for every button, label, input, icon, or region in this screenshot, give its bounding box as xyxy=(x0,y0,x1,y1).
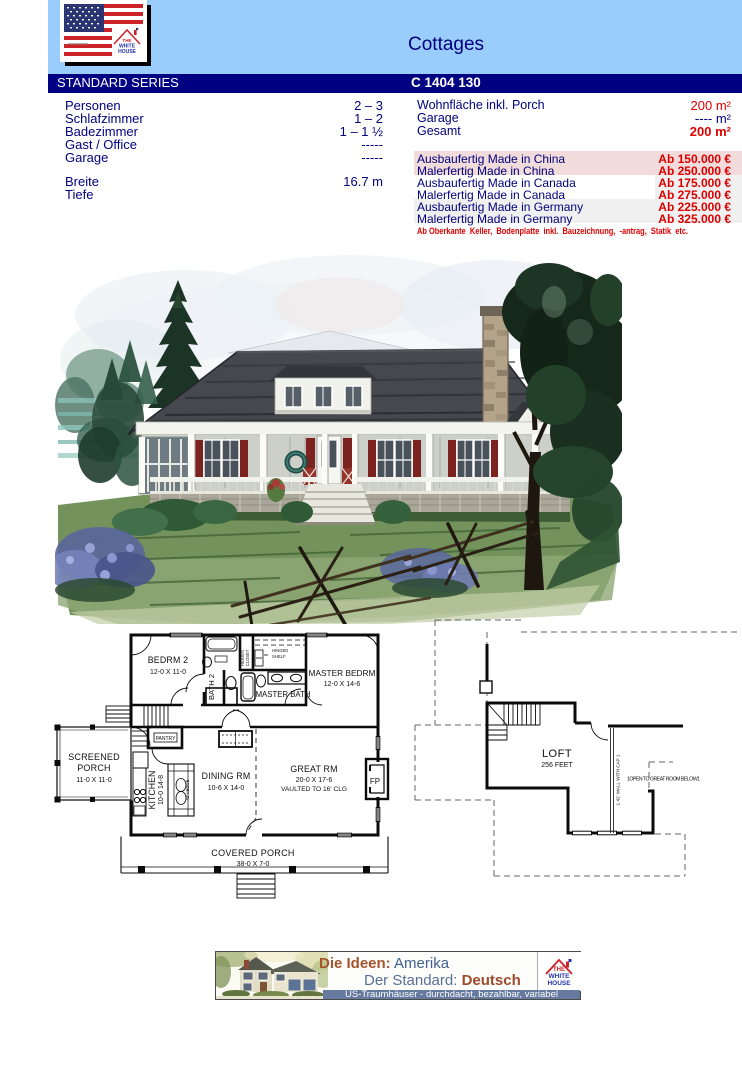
svg-text:PORCH: PORCH xyxy=(77,763,111,773)
svg-text:VAULTED TO 16' CLG: VAULTED TO 16' CLG xyxy=(281,786,347,793)
svg-text:LOFT: LOFT xyxy=(542,748,572,760)
svg-text:DINING RM: DINING RM xyxy=(202,771,251,781)
svg-text:12-0 X 11-0: 12-0 X 11-0 xyxy=(150,669,186,676)
svg-text:38-0 X 7-0: 38-0 X 7-0 xyxy=(237,861,270,868)
svg-text:BATH 2: BATH 2 xyxy=(207,674,216,700)
svg-text:PANTRY: PANTRY xyxy=(156,736,176,742)
svg-text:1 42' WALL WITH CAP 1: 1 42' WALL WITH CAP 1 xyxy=(616,754,621,805)
svg-text:COVERED PORCH: COVERED PORCH xyxy=(211,848,294,858)
svg-text:HOUSE: HOUSE xyxy=(118,49,136,55)
svg-text:THE: THE xyxy=(122,38,131,43)
svg-text:10-6 X 14-0: 10-6 X 14-0 xyxy=(208,785,245,792)
svg-text:FP: FP xyxy=(370,777,380,786)
svg-text:CLOSET: CLOSET xyxy=(245,649,250,666)
svg-text:10-0 14-8: 10-0 14-8 xyxy=(158,775,165,805)
svg-text:256 FEET: 256 FEET xyxy=(541,762,573,769)
svg-text:MASTER BEDRM: MASTER BEDRM xyxy=(309,668,376,678)
svg-text:WHITE: WHITE xyxy=(548,973,570,980)
svg-text:GREAT RM: GREAT RM xyxy=(290,764,337,774)
svg-text:42' LEDGE: 42' LEDGE xyxy=(185,779,190,800)
svg-text:MASTER BATH: MASTER BATH xyxy=(256,690,311,699)
svg-text:20-0 X 17-6: 20-0 X 17-6 xyxy=(296,777,333,784)
svg-text:HINGED: HINGED xyxy=(272,648,288,653)
svg-text:SCREENED: SCREENED xyxy=(68,752,120,762)
svg-text:BEDRM 2: BEDRM 2 xyxy=(148,655,189,665)
svg-text:11-0 X 11-0: 11-0 X 11-0 xyxy=(76,777,112,784)
svg-text:SHELF: SHELF xyxy=(272,654,286,659)
svg-text:HOUSE: HOUSE xyxy=(547,980,571,987)
svg-text:12-0 X 14-6: 12-0 X 14-6 xyxy=(324,681,361,688)
svg-text:KITCHEN: KITCHEN xyxy=(147,771,157,810)
svg-text:1OPEN TO GREAT ROOM BELOW1: 1OPEN TO GREAT ROOM BELOW1 xyxy=(627,777,700,783)
